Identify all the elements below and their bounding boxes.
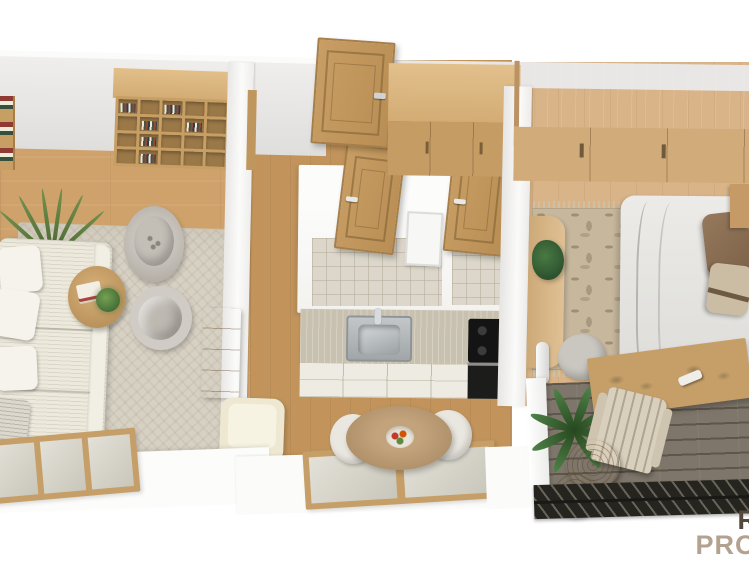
window-pane — [0, 442, 38, 497]
living-room-window — [0, 428, 141, 505]
wardrobe-top — [514, 61, 749, 129]
window-pane — [40, 438, 86, 493]
sink-basin — [358, 324, 400, 354]
glass-pane — [670, 343, 748, 402]
wardrobe-front — [513, 127, 749, 183]
bedroom-wardrobe — [513, 61, 749, 183]
books — [142, 120, 158, 129]
bookshelf-shelves — [113, 96, 229, 170]
wall-cabinet — [405, 211, 444, 267]
door-handle — [346, 196, 359, 202]
wardrobe-handle — [426, 142, 429, 154]
wardrobe-front — [387, 121, 520, 177]
kitchen-sink — [346, 315, 412, 362]
books — [141, 154, 157, 163]
fruit-bowl — [386, 426, 414, 448]
swivel-armchair-seat — [138, 296, 182, 340]
floorplan-render: R PRO — [0, 0, 749, 562]
swivel-armchair — [130, 286, 192, 350]
wardrobe-top — [388, 63, 521, 124]
sofa-pillow — [0, 245, 44, 295]
wardrobe-handle — [580, 143, 584, 157]
beige-pillow — [705, 262, 749, 316]
entry-door — [310, 37, 395, 148]
books — [120, 103, 135, 112]
door-panel — [330, 63, 376, 124]
books — [165, 105, 181, 114]
sideboard — [201, 308, 241, 399]
nightstand — [730, 184, 749, 228]
books — [186, 122, 202, 131]
books — [141, 137, 157, 146]
armchair-seat — [134, 216, 174, 266]
table-plant — [96, 288, 120, 312]
sofa-pillow — [0, 345, 38, 391]
window-pane — [88, 434, 134, 489]
dining-table — [346, 406, 452, 470]
coffee-table — [68, 266, 126, 328]
mini-shelf — [0, 96, 15, 170]
hallway-wardrobe — [387, 63, 521, 177]
desk-plant — [532, 240, 564, 280]
wardrobe-handle — [662, 144, 666, 158]
wardrobe-handle — [480, 142, 483, 154]
armchair — [124, 206, 184, 282]
door-handle — [454, 198, 466, 204]
pillow-strap — [708, 287, 749, 302]
cream-lounge-chair-seat — [227, 403, 277, 449]
door-handle — [374, 92, 386, 99]
faucet — [374, 309, 381, 325]
railing-rail — [534, 495, 749, 504]
watermark: R PRO — [695, 508, 749, 558]
watermark-line2: PRO — [695, 533, 749, 558]
bookshelf — [110, 68, 235, 172]
living-room-door — [246, 90, 257, 170]
kitchen-counter — [300, 305, 523, 399]
